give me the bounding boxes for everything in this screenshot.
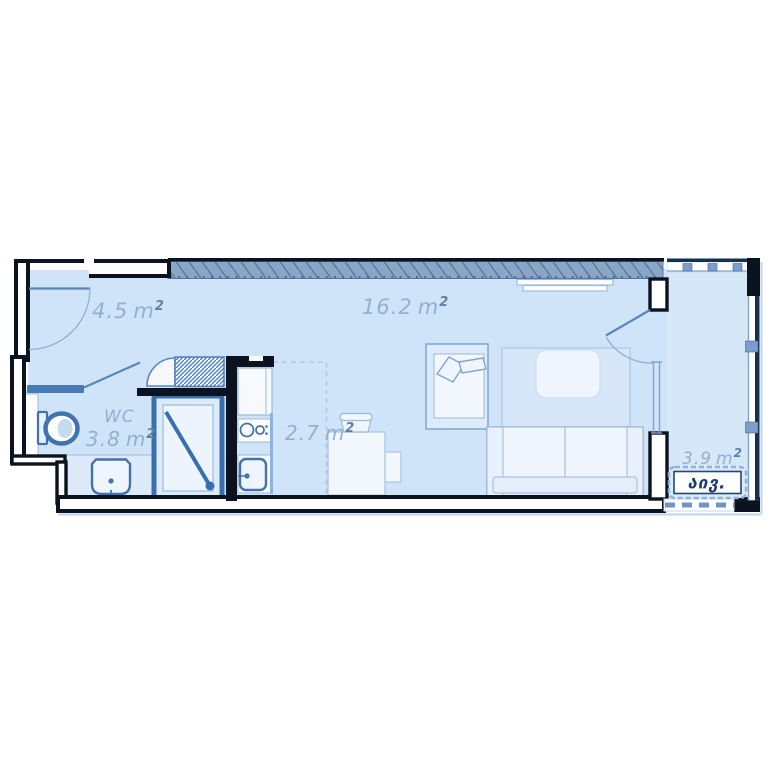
balcony-wall-stub-top [650,279,667,310]
coffee-table [536,350,600,398]
bed [426,344,488,429]
rug [502,348,630,430]
sofa [487,427,643,497]
bottom-wall [58,497,664,511]
entry-jamb-notch [84,258,94,264]
kitchen-wall-notch [249,356,263,361]
shower [154,396,222,500]
closet-wall [137,388,227,396]
kitchen-sink [232,455,273,493]
kitchen-wall-v [226,356,237,501]
fridge [238,368,272,415]
hatched-wall-band [168,262,663,279]
floor-plan: 4.5m2 16.2m2 WC 3.8m2 2.7m2 3.9m2 აივ. [0,0,775,775]
radiator [517,280,613,292]
toilet [38,412,78,444]
entry-opening [29,270,89,278]
wc-partition [27,385,84,393]
wc-name-label: WC [104,407,135,427]
left-wall-lower [12,357,24,462]
balcony-tag-text: აივ. [688,474,727,494]
balcony-wall-stub-bottom [650,433,667,499]
balcony-tag: აივ. [669,467,746,498]
balcony-balustrade [664,499,734,511]
stove [238,419,272,442]
glazing-corner [747,258,760,296]
wc-niche [24,394,38,458]
washbasin [66,455,152,497]
living-room-area-label: 16.2m2 [362,295,449,319]
left-wall-upper [16,261,28,360]
